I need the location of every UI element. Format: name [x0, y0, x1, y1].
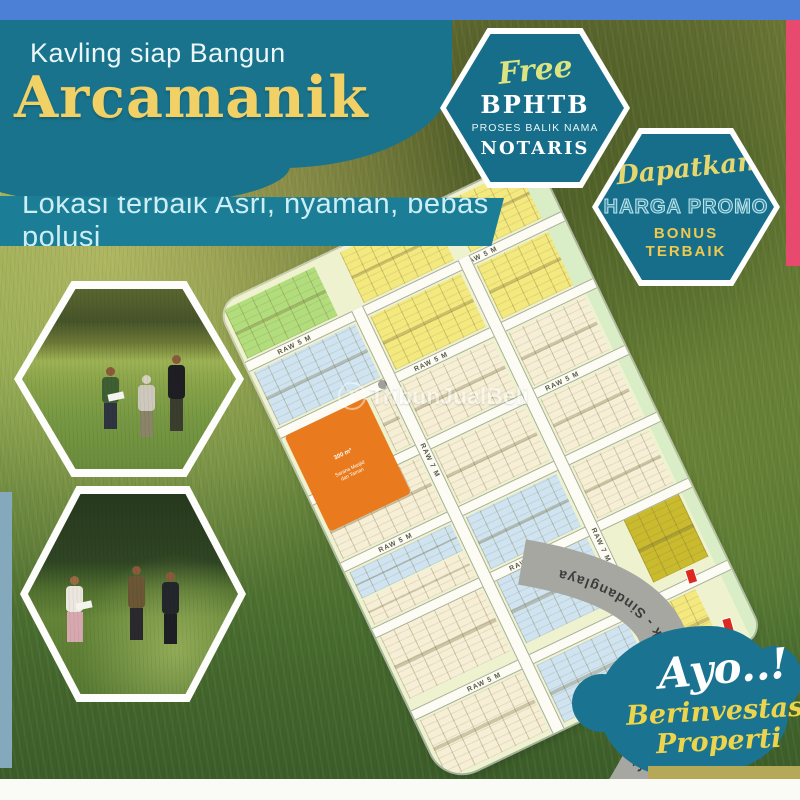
plot-block-cream — [420, 672, 549, 778]
person — [138, 375, 155, 437]
watermark-logo-icon: T — [338, 382, 366, 410]
badge-harga-promo: Dapatkan HARGA PROMO BONUS TERBAIK — [592, 128, 780, 286]
person — [162, 572, 179, 644]
person — [168, 355, 185, 431]
page-title: Arcamanik — [14, 64, 369, 131]
photo-hex-survey-2 — [20, 486, 246, 702]
watermark-text: TribunJualBeli — [370, 383, 528, 410]
badge-free-title: BPHTB — [480, 90, 589, 119]
watermark: T TribunJualBeli — [338, 382, 528, 410]
badge-promo-terbaik: TERBAIK — [646, 243, 727, 260]
top-bar — [0, 0, 800, 20]
badge-promo-script: Dapatkan — [615, 147, 758, 191]
olive-strip — [648, 766, 800, 780]
badge-promo-bonus: BONUS — [654, 225, 718, 242]
tagline-text: Lokasi terbaik Asri, nyaman, bebas polus… — [22, 188, 504, 254]
badge-promo-title: HARGA PROMO — [604, 196, 769, 219]
document-paper — [75, 600, 92, 610]
person — [128, 566, 145, 640]
badge-free-subtitle: PROSES BALIK NAMA — [472, 122, 599, 134]
photo-hex-survey-1 — [14, 281, 244, 477]
facility-area: 300 m² — [333, 448, 353, 462]
watermark-dot — [378, 380, 387, 389]
bottom-white-strip — [0, 779, 800, 800]
cta-script: Ayo..! — [656, 638, 790, 698]
badge-free-script: Free — [496, 49, 574, 92]
left-edge-strip — [0, 492, 12, 768]
pink-accent-strip — [786, 20, 800, 266]
badge-free-footer: NOTARIS — [481, 138, 590, 159]
tagline-bar: Lokasi terbaik Asri, nyaman, bebas polus… — [0, 196, 504, 246]
header-banner: Kavling siap Bangun Arcamanik — [0, 20, 452, 168]
document-paper — [107, 391, 124, 401]
cta-line2: Properti — [655, 723, 782, 761]
poster: RAW 5 M RAW 5 M RAW 5 M RAW 5 M RAW 5 M … — [0, 0, 800, 800]
